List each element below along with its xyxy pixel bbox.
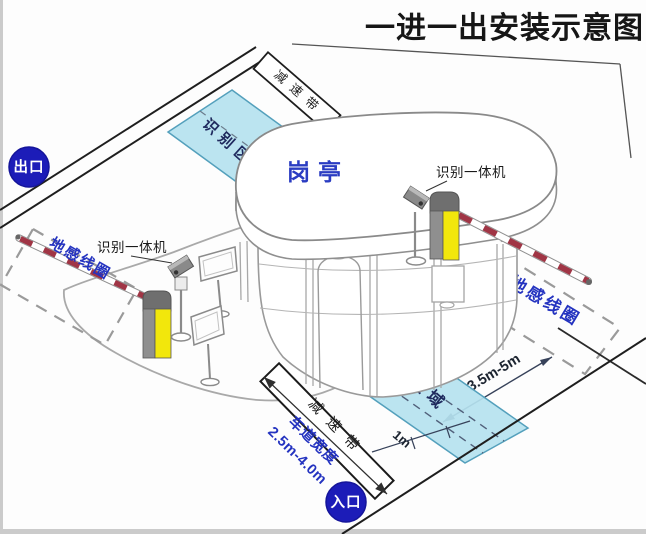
diagram-canvas: 减速带 识别区域 地感线圈 3.5m-5m 识别区域 1m 减速带 车道宽度 2… [0,0,646,534]
page-title: 一进一出安装示意图 [365,11,644,45]
booth-desk-base [440,302,454,308]
camera-exit-label: 识别一体机 [97,240,167,255]
bottom-border [0,529,646,534]
exit-badge: 出口 [9,147,49,187]
barrier-post-entry [430,192,459,260]
camera-exit-base [172,333,191,341]
left-border [0,0,3,534]
camera-exit-box [175,277,187,290]
camera-entry-label: 识别一体机 [436,165,506,180]
barrier-post-exit [143,291,171,358]
installation-diagram: 减速带 识别区域 地感线圈 3.5m-5m 识别区域 1m 减速带 车道宽度 2… [0,0,646,534]
booth-desk [432,266,464,302]
entrance-badge-label: 入口 [331,494,362,511]
exit-badge-label: 出口 [14,158,45,176]
arm-tip [16,235,21,240]
camera-entry-base [407,257,426,265]
booth-label: 岗亭 [287,159,349,185]
entrance-badge: 入口 [326,482,366,522]
arm-tip [586,279,592,285]
